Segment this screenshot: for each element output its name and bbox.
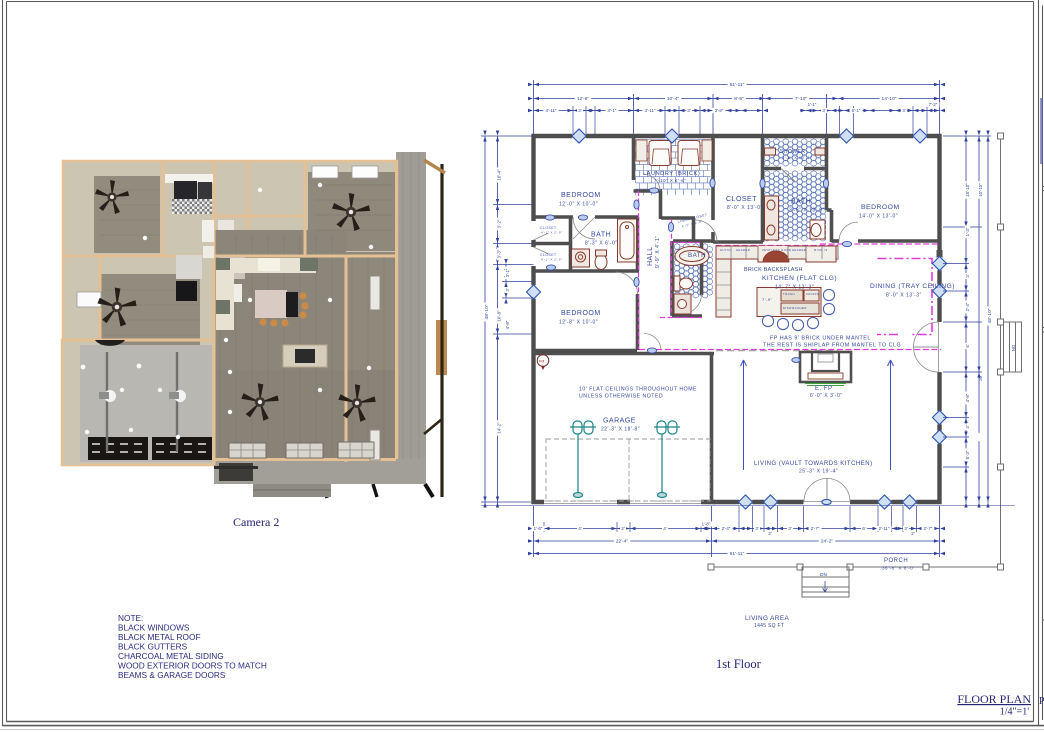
svg-text:12'-6": 12'-6" [577, 96, 590, 102]
svg-text:PORCH: PORCH [884, 558, 908, 564]
svg-text:22'-3" X 18'-8": 22'-3" X 18'-8" [601, 427, 640, 433]
svg-text:7'-9": 7'-9" [762, 297, 773, 302]
svg-text:DN: DN [1011, 345, 1016, 351]
svg-text:DISHWASHER: DISHWASHER [783, 306, 807, 310]
svg-text:3': 3' [904, 526, 907, 531]
svg-text:14'-2": 14'-2" [497, 422, 502, 434]
svg-text:24'-2": 24'-2" [821, 539, 834, 545]
svg-text:CLOSET: CLOSET [540, 226, 557, 230]
svg-text:3'-1": 3'-1" [505, 268, 510, 277]
svg-text:BRICK BACKSPLASH: BRICK BACKSPLASH [744, 267, 803, 273]
svg-text:3': 3' [822, 108, 825, 113]
svg-text:HEADER: HEADER [792, 248, 806, 252]
svg-text:4'-1": 4'-1" [608, 108, 617, 113]
svg-text:6': 6' [862, 526, 865, 531]
svg-text:12'-0" X 10'-0": 12'-0" X 10'-0" [559, 202, 598, 208]
svg-text:5'-3": 5'-3" [965, 450, 970, 459]
svg-text:3': 3' [578, 108, 581, 113]
svg-text:1st Floor: 1st Floor [716, 657, 762, 671]
svg-text:14'-7" X 13'-3": 14'-7" X 13'-3" [775, 285, 814, 291]
svg-text:10'-10": 10'-10" [978, 183, 983, 197]
svg-text:9'-9" X 4'-1": 9'-9" X 4'-1" [655, 235, 661, 268]
svg-text:22'-4": 22'-4" [616, 539, 629, 545]
svg-text:51'-11": 51'-11" [730, 82, 745, 88]
svg-text:BLACK WINDOWS: BLACK WINDOWS [118, 623, 190, 633]
svg-text:FLOOR PLAN: FLOOR PLAN [957, 692, 1031, 706]
svg-text:48'-10": 48'-10" [987, 308, 993, 323]
svg-text:1/4"=1': 1/4"=1' [1000, 707, 1030, 718]
svg-text:P: P [1039, 696, 1044, 707]
svg-text:10' FLAT CEILINGS THROUGHOUT H: 10' FLAT CEILINGS THROUGHOUT HOME [579, 387, 697, 393]
svg-text:2': 2' [768, 531, 771, 536]
svg-text:GARAGE: GARAGE [603, 418, 636, 425]
svg-text:4': 4' [663, 526, 666, 531]
svg-text:3'-3": 3'-3" [497, 249, 502, 258]
svg-text:4': 4' [578, 526, 581, 531]
svg-text:3'-2": 3'-2" [497, 219, 502, 228]
svg-text:3': 3' [965, 425, 970, 428]
svg-text:3'-8": 3'-8" [715, 108, 724, 113]
svg-text:1445 SQ FT: 1445 SQ FT [754, 623, 784, 629]
svg-text:7'-2": 7'-2" [929, 102, 938, 107]
svg-text:3': 3' [788, 526, 791, 531]
svg-text:8'-3" X 6'-0": 8'-3" X 6'-0" [585, 241, 618, 247]
svg-text:15'-10": 15'-10" [965, 183, 970, 197]
svg-text:UNLESS OTHERWISE NOTED: UNLESS OTHERWISE NOTED [579, 394, 663, 400]
svg-text:Camera 2: Camera 2 [233, 515, 279, 529]
svg-text:6'-1": 6'-1" [852, 108, 861, 113]
svg-text:3': 3' [755, 526, 758, 531]
svg-text:10'-8": 10'-8" [497, 310, 502, 322]
svg-text:14'-10": 14'-10" [882, 96, 897, 102]
svg-text:BEDROOM: BEDROOM [861, 204, 900, 211]
svg-text:CHARCOAL METAL SIDING: CHARCOAL METAL SIDING [118, 651, 224, 661]
svg-text:E. FP: E. FP [815, 386, 833, 392]
svg-text:4'-1" X 2'-0": 4'-1" X 2'-0" [541, 258, 563, 262]
svg-text:NOTE:: NOTE: [118, 613, 143, 623]
svg-text:3'-6" X 10'-1": 3'-6" X 10'-1" [782, 155, 812, 160]
svg-text:BEDROOM: BEDROOM [561, 310, 601, 317]
svg-text:8'-5": 8'-5" [734, 96, 744, 102]
svg-text:10'-4": 10'-4" [667, 96, 680, 102]
svg-text:CLOSET: CLOSET [540, 253, 557, 257]
svg-text:2'-7": 2'-7" [924, 526, 933, 531]
svg-text:4'-11": 4'-11" [546, 108, 557, 113]
svg-text:CLOSET: CLOSET [726, 196, 757, 203]
svg-text:8'-0" X 13'-3": 8'-0" X 13'-3" [886, 293, 922, 299]
svg-text:FP HAS 9' BRICK UNDER MANTEL: FP HAS 9' BRICK UNDER MANTEL [770, 336, 871, 342]
svg-text:WOOD EXTERIOR DOORS TO MATCH: WOOD EXTERIOR DOORS TO MATCH [118, 661, 267, 671]
svg-text:48'-10": 48'-10" [484, 304, 490, 319]
svg-text:6'-0" X 3'-0": 6'-0" X 3'-0" [810, 393, 843, 399]
svg-text:BEDROOM: BEDROOM [561, 192, 601, 199]
svg-text:THE REST IS SHIPLAP FROM MANTE: THE REST IS SHIPLAP FROM MANTEL TO CLG [763, 343, 901, 349]
svg-text:12'-8" X 10'-0": 12'-8" X 10'-0" [559, 320, 598, 326]
svg-text:KITCHEN (FLAT CLG): KITCHEN (FLAT CLG) [762, 275, 837, 282]
svg-text:BATH: BATH [591, 232, 611, 239]
svg-text:BLACK GUTTERS: BLACK GUTTERS [118, 642, 188, 652]
svg-text:1'-3": 1'-3" [965, 227, 970, 236]
svg-text:20': 20' [978, 375, 983, 381]
svg-text:DN: DN [820, 572, 827, 578]
svg-text:DINING (TRAY CEILING): DINING (TRAY CEILING) [870, 283, 955, 290]
svg-text:2'-7": 2'-7" [811, 526, 820, 531]
svg-text:VENTLESS HOOD: VENTLESS HOOD [762, 248, 791, 252]
svg-text:HALL: HALL [647, 246, 654, 266]
svg-text:36'-8" X 8'-0": 36'-8" X 8'-0" [882, 566, 915, 571]
svg-text:4'-1" X 2'-0": 4'-1" X 2'-0" [541, 231, 563, 235]
svg-text:1'-8": 1'-8" [702, 522, 711, 527]
svg-text:TRASH: TRASH [783, 292, 795, 296]
svg-text:25'-3" X 19'-4": 25'-3" X 19'-4" [799, 469, 838, 475]
svg-text:3'-11": 3'-11" [645, 108, 656, 113]
svg-text:3': 3' [505, 288, 510, 291]
svg-text:10'-4": 10'-4" [497, 169, 502, 181]
svg-text:8'-0" X 13'-0": 8'-0" X 13'-0" [727, 205, 763, 211]
svg-text:2': 2' [621, 526, 624, 531]
svg-text:2'-11": 2'-11" [879, 526, 890, 531]
svg-text:3': 3' [687, 108, 690, 113]
svg-text:LIVING (VAULT TOWARDS KITCHEN): LIVING (VAULT TOWARDS KITCHEN) [754, 461, 873, 467]
svg-text:4'-8": 4'-8" [505, 320, 510, 329]
svg-text:7'-10" X 6'-6": 7'-10" X 6'-6" [654, 178, 686, 183]
svg-text:51'-11": 51'-11" [730, 551, 745, 557]
svg-text:2'-4": 2'-4" [965, 302, 970, 311]
svg-text:6': 6' [965, 344, 970, 347]
svg-text:4'-8": 4'-8" [965, 393, 970, 402]
svg-text:BATH: BATH [791, 199, 811, 206]
svg-text:7'-10": 7'-10" [795, 96, 808, 102]
svg-text:1'-6": 1'-6" [534, 526, 543, 531]
svg-text:FM: FM [539, 360, 544, 364]
svg-text:HEADER: HEADER [736, 248, 750, 252]
svg-text:3': 3' [902, 108, 905, 113]
svg-text:BEAMS & GARAGE DOORS: BEAMS & GARAGE DOORS [118, 670, 226, 680]
svg-text:BATH: BATH [688, 252, 706, 259]
svg-text:2'-4": 2'-4" [722, 526, 731, 531]
svg-text:LAUNDRY (BRICK): LAUNDRY (BRICK) [643, 171, 700, 177]
svg-text:3': 3' [965, 274, 970, 277]
svg-text:3'-6" X 13'-0": 3'-6" X 13'-0" [789, 208, 825, 214]
svg-text:1'-1": 1'-1" [808, 102, 817, 107]
svg-text:CRISPA: CRISPA [806, 292, 819, 296]
svg-text:MICR./S: MICR./S [814, 248, 828, 252]
svg-text:LIVING AREA: LIVING AREA [745, 615, 790, 622]
svg-text:2': 2' [911, 531, 914, 536]
svg-text:14'-0" X 13'-0": 14'-0" X 13'-0" [859, 214, 898, 220]
svg-text:HUTCH: HUTCH [720, 248, 732, 252]
svg-text:BLACK METAL ROOF: BLACK METAL ROOF [118, 632, 201, 642]
